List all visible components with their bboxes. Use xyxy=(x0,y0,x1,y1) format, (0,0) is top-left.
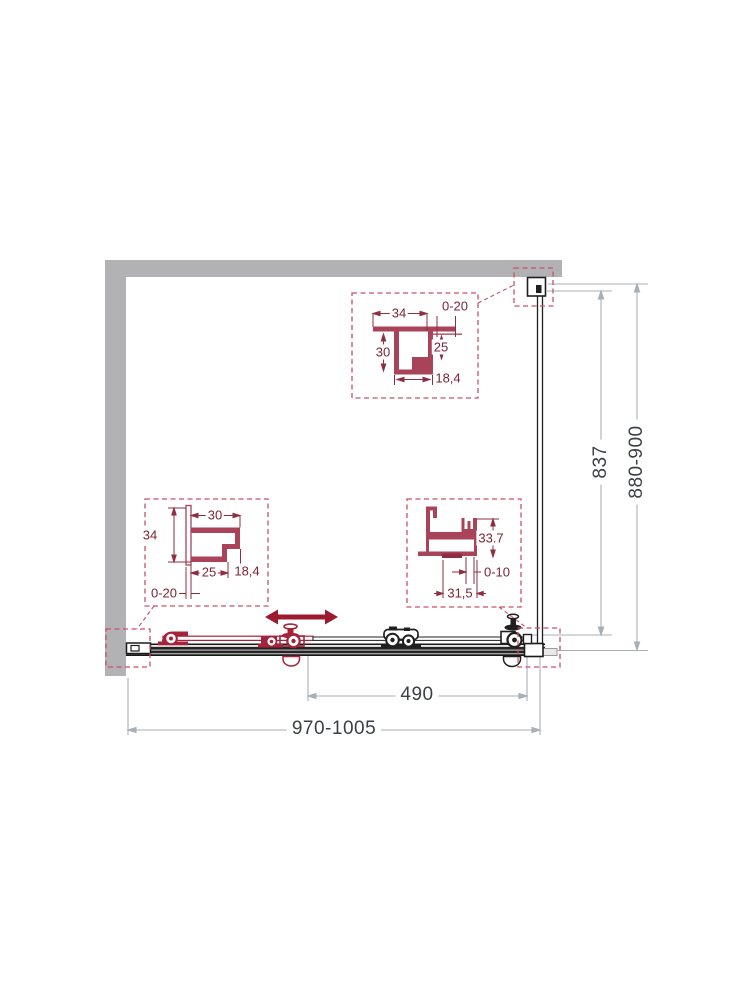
dim-bottom-profile-height: 33.7 xyxy=(476,531,505,546)
dim-bottom-profile-width: 31,5 xyxy=(445,586,474,601)
slide-direction-arrow-icon xyxy=(265,610,338,625)
dim-top-channel-bottom: 18,4 xyxy=(433,371,462,386)
dim-bottom-glass-adjust: 0-10 xyxy=(482,565,512,580)
dim-left-side-height: 18,4 xyxy=(232,564,261,579)
dim-overall-width-label: 970-1005 xyxy=(287,717,381,741)
dim-top-flange-width: 34 xyxy=(390,306,408,321)
fixed-glass-panel xyxy=(538,291,543,644)
callout-boxes xyxy=(106,268,560,667)
dim-overall-height-label: 880-900 xyxy=(625,419,649,504)
door-panels xyxy=(163,636,525,640)
dim-glass-height-label: 837 xyxy=(589,439,613,484)
dim-top-wall-adjust: 0-20 xyxy=(440,299,470,314)
callout-leaders xyxy=(137,285,527,629)
black-roller-pair xyxy=(381,627,421,648)
bottom-rail xyxy=(126,643,557,657)
fixed-door-glass xyxy=(313,637,525,640)
dim-left-overall-height: 34 xyxy=(141,528,159,543)
technical-drawing-page: 837 880-900 490 970-1005 34 0-20 30 25 1… xyxy=(0,0,750,1000)
dim-left-top-width: 30 xyxy=(206,508,224,523)
red-adjuster-roller xyxy=(258,624,304,666)
dim-left-bottom-width: 25 xyxy=(200,565,218,580)
detail-bottom-profile xyxy=(418,507,499,599)
rail-right-endcap xyxy=(525,644,544,657)
dim-top-inner-height: 25 xyxy=(432,340,450,355)
dim-door-opening-label: 490 xyxy=(395,683,438,707)
top-wall-bracket xyxy=(528,278,546,297)
dim-left-wall-adjust: 0-20 xyxy=(149,586,179,601)
wall xyxy=(105,260,562,676)
anti-jump-clip-red xyxy=(283,657,300,667)
dim-top-channel-height: 30 xyxy=(374,345,392,360)
